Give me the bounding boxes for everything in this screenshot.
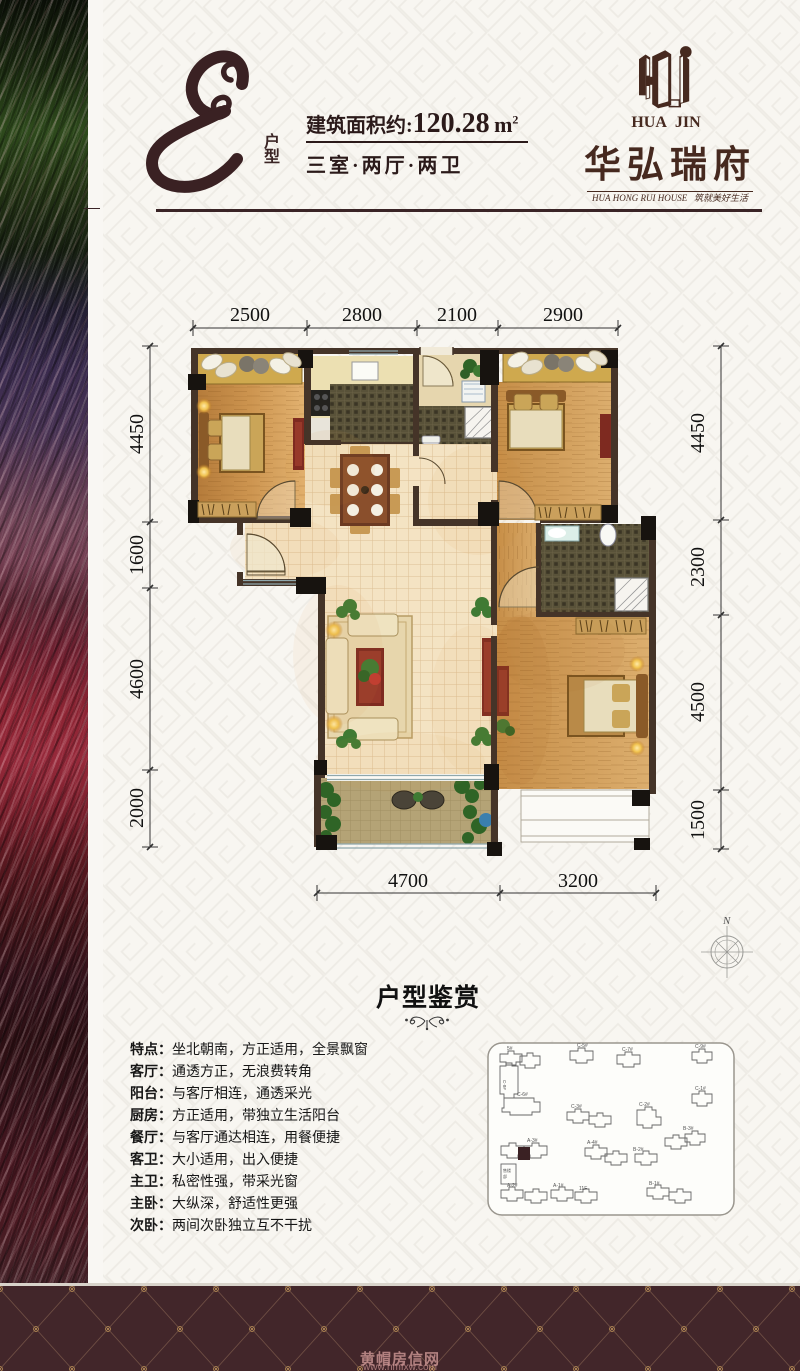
svg-text:4450: 4450 — [687, 413, 709, 453]
svg-text:售楼: 售楼 — [503, 1167, 511, 1173]
svg-text:2900: 2900 — [543, 304, 583, 326]
svg-text:2100: 2100 — [437, 304, 477, 326]
svg-text:A-1#: A-1# — [553, 1183, 564, 1189]
svg-text:B-2#: B-2# — [633, 1147, 644, 1153]
svg-text:C-3#: C-3# — [571, 1104, 582, 1110]
svg-text:4500: 4500 — [687, 682, 709, 722]
svg-text:2300: 2300 — [687, 547, 709, 587]
svg-text:C-9#: C-9# — [695, 1044, 706, 1050]
svg-text:C-6#: C-6# — [517, 1092, 528, 1098]
svg-text:A-4#: A-4# — [587, 1140, 598, 1146]
svg-text:4450: 4450 — [126, 414, 148, 454]
svg-text:3200: 3200 — [558, 870, 598, 892]
svg-text:1500: 1500 — [687, 800, 709, 840]
svg-text:C-1#: C-1# — [695, 1086, 706, 1092]
svg-text:B-3#: B-3# — [683, 1126, 694, 1132]
svg-text:N: N — [722, 915, 731, 927]
svg-text:部: 部 — [503, 1173, 507, 1179]
svg-text:2500: 2500 — [230, 304, 270, 326]
svg-text:11F: 11F — [579, 1186, 587, 1192]
svg-text:5#: 5# — [507, 1046, 513, 1052]
svg-text:C-5#: C-5# — [577, 1043, 588, 1049]
svg-text:C-2#: C-2# — [639, 1102, 650, 1108]
svg-text:A-3#: A-3# — [527, 1138, 538, 1144]
svg-text:4600: 4600 — [126, 659, 148, 699]
svg-text:B-1#: B-1# — [649, 1181, 660, 1187]
svg-text:1600: 1600 — [126, 535, 148, 575]
svg-text:A-2#: A-2# — [507, 1183, 518, 1189]
svg-text:2000: 2000 — [126, 788, 148, 828]
svg-text:2800: 2800 — [342, 304, 382, 326]
svg-text:4700: 4700 — [388, 870, 428, 892]
svg-text:C-8#: C-8# — [502, 1080, 507, 1090]
svg-text:C-7#: C-7# — [622, 1047, 633, 1053]
